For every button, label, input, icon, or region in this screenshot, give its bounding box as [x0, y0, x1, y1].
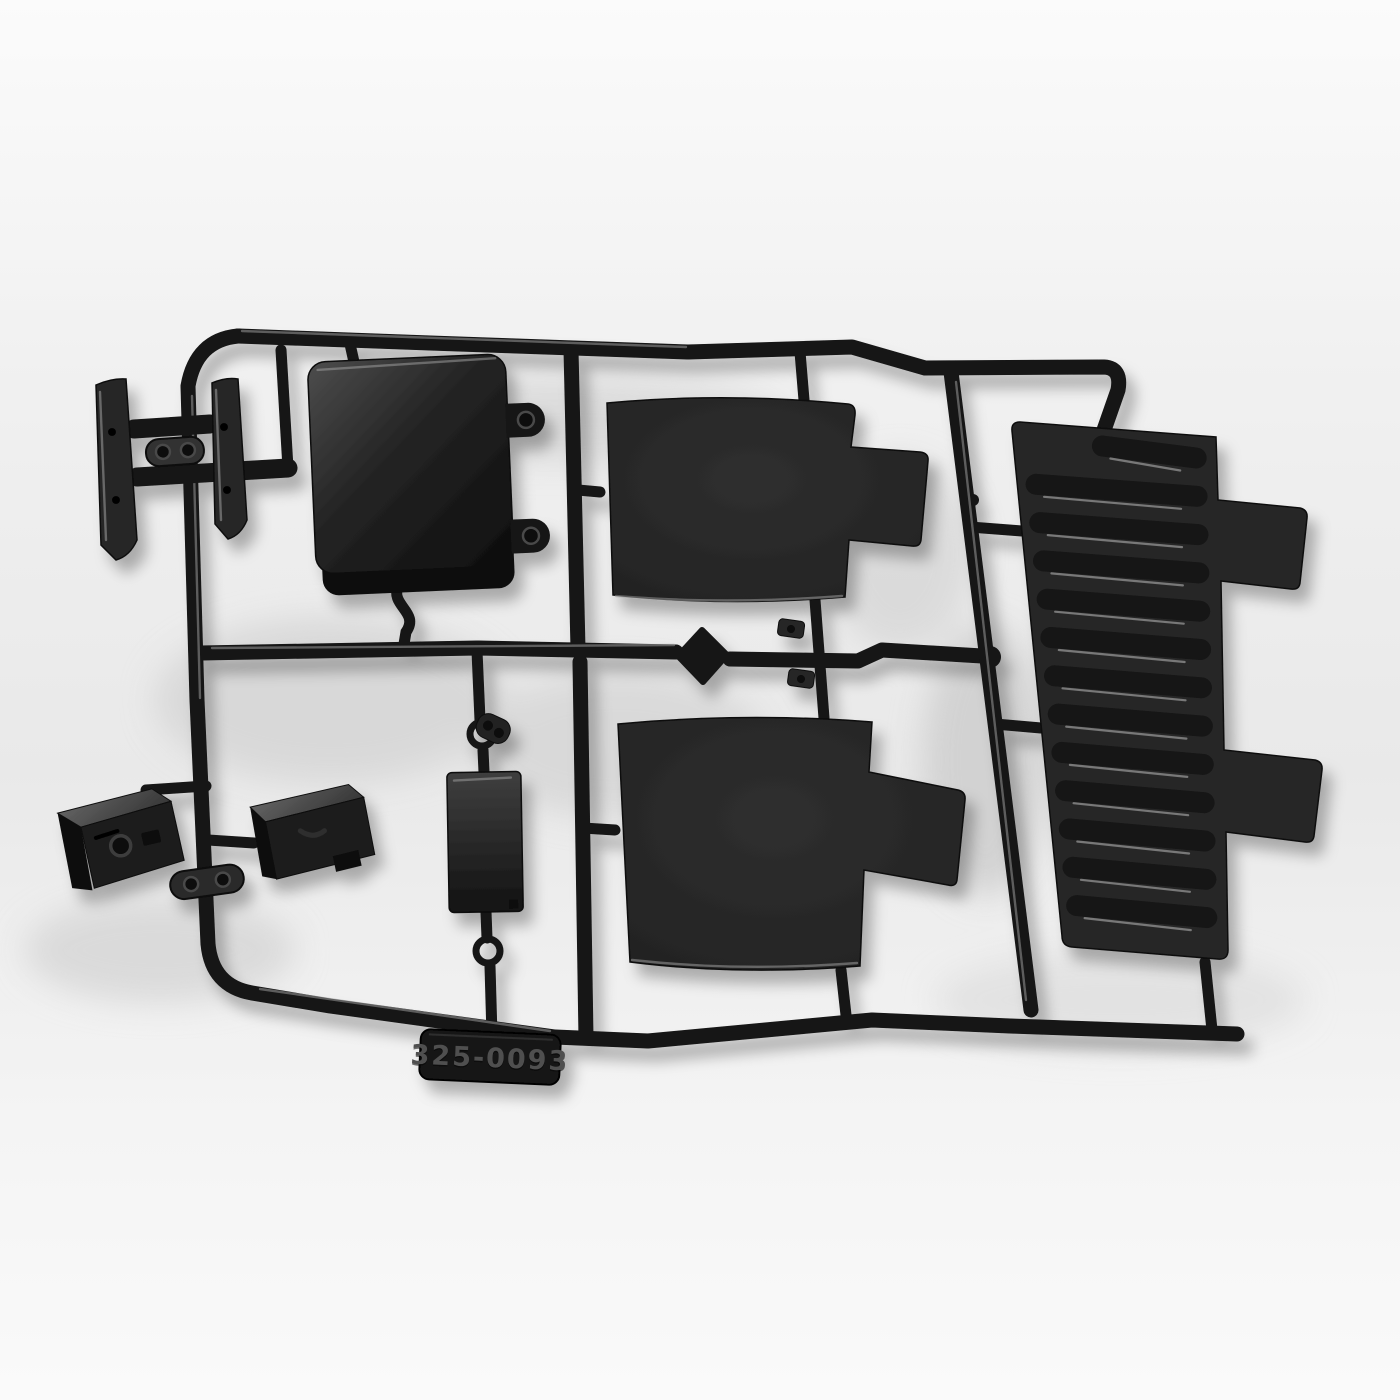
louver-rib — [1055, 676, 1202, 688]
link-bracket-two-hole — [145, 436, 205, 467]
jerry-can-cap — [110, 835, 132, 857]
louver-rib — [1051, 638, 1201, 650]
louver-rib — [1073, 867, 1206, 879]
louver-rib — [1062, 752, 1203, 764]
louver-rib — [1058, 714, 1202, 726]
runner-clip-lower — [787, 668, 815, 688]
product-photo: 325-0093 325-0093 — [0, 0, 1400, 1400]
mold-number-tag: 325-0093 325-0093 — [410, 1029, 571, 1086]
louver-rib — [1047, 599, 1200, 611]
louver-rib — [1036, 484, 1197, 496]
louver-rib — [1043, 561, 1198, 573]
flat-plate — [447, 771, 523, 912]
louver-rib — [1102, 446, 1196, 458]
louver-rib — [1040, 523, 1198, 535]
runner-clip-upper — [777, 618, 805, 638]
louver-rib — [1066, 791, 1205, 803]
louver-rib — [1077, 906, 1207, 918]
louver-rib — [1069, 829, 1205, 841]
